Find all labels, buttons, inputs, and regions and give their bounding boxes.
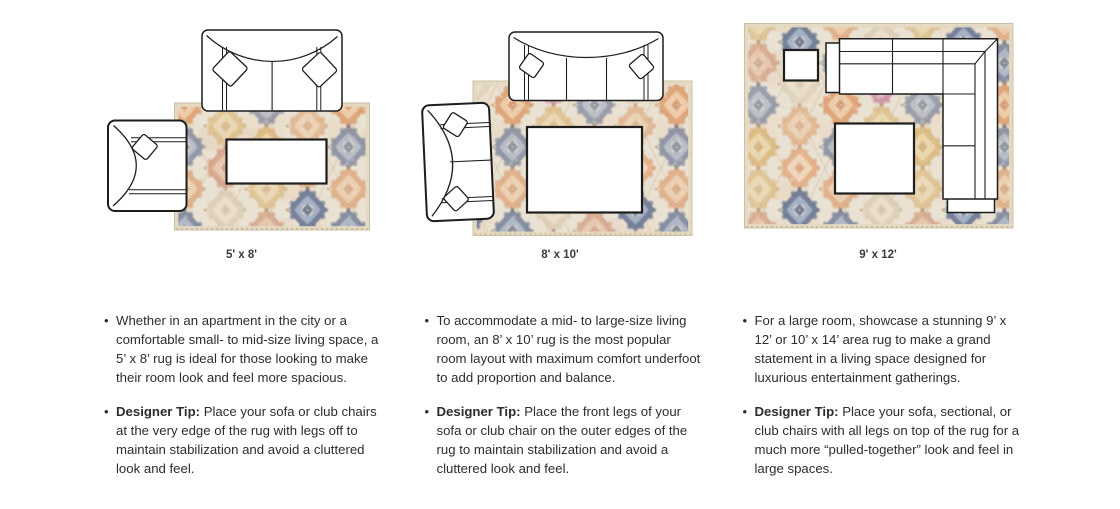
svg-text:5' x 8': 5' x 8' [226, 249, 257, 261]
svg-text:8' x 10': 8' x 10' [541, 249, 579, 261]
svg-text:9' x 12': 9' x 12' [859, 249, 897, 261]
